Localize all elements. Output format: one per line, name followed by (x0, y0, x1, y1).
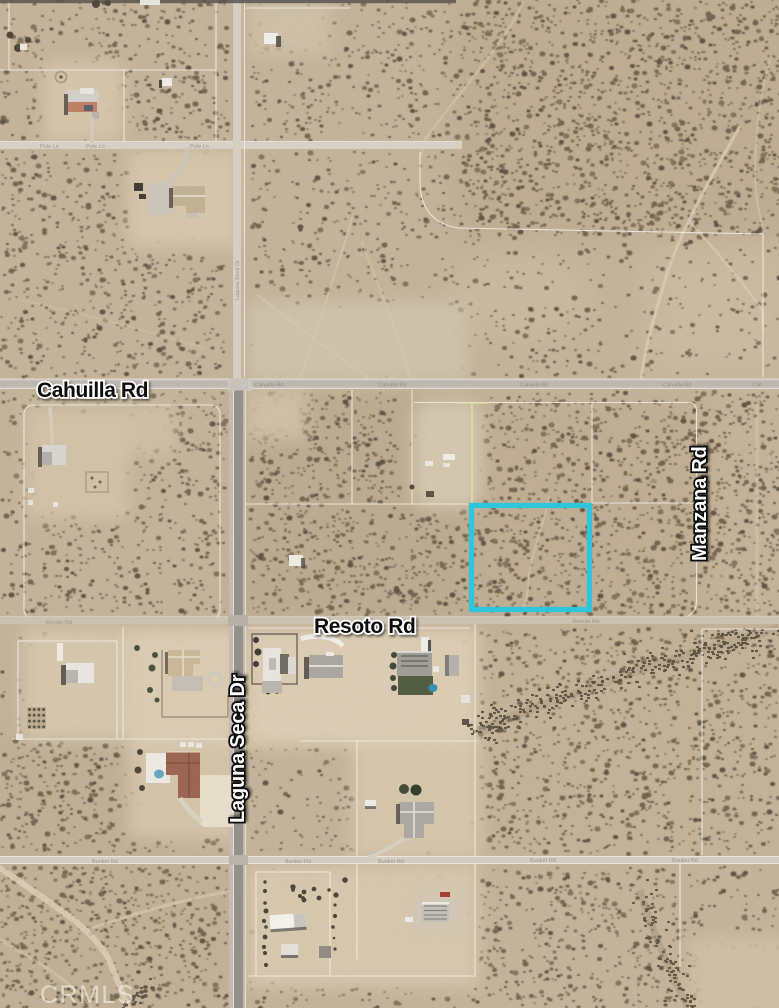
svg-text:Manzana Rd: Manzana Rd (689, 446, 711, 561)
svg-text:Resoto Rd: Resoto Rd (314, 615, 415, 638)
svg-text:CRMLS: CRMLS (40, 981, 135, 1008)
svg-text:Cahuilla Rd: Cahuilla Rd (37, 379, 148, 402)
svg-text:Laguna Seca Dr: Laguna Seca Dr (227, 674, 249, 823)
